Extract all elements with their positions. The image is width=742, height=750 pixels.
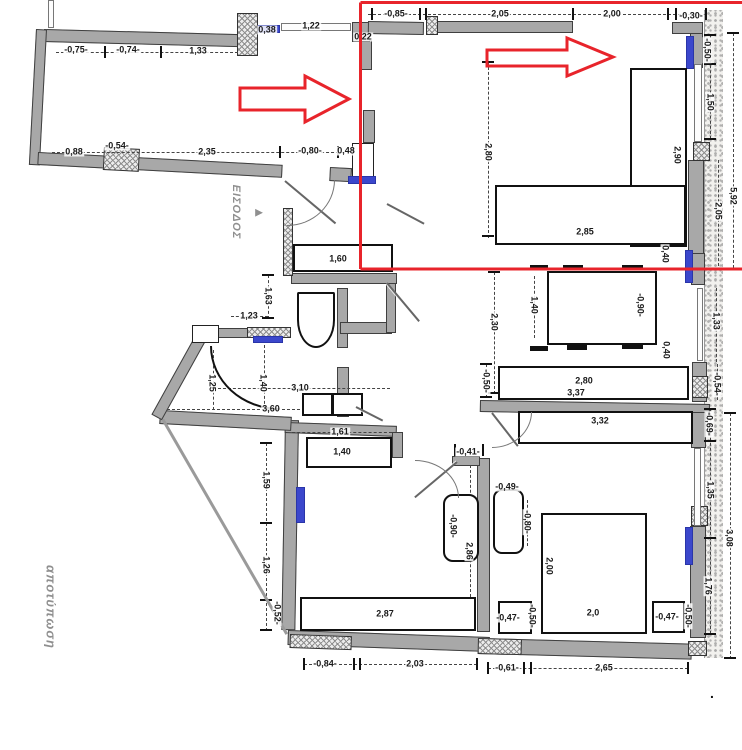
wall-segment — [340, 322, 392, 334]
door-swing-arc — [210, 346, 280, 410]
dimension-label: -0,49- — [494, 483, 520, 492]
chair-mark — [530, 265, 548, 270]
dimension-tick — [419, 8, 421, 20]
chair-mark — [622, 344, 643, 349]
dimension-tick — [727, 32, 739, 34]
dimension-label: 1,61 — [330, 428, 350, 437]
wall-segment — [281, 420, 299, 630]
hatched-pier — [688, 641, 707, 656]
chair-mark — [567, 345, 587, 350]
door-swing-arc — [287, 180, 335, 226]
corner-dot: . — [710, 685, 714, 701]
furniture-outline — [302, 393, 333, 416]
wall-segment — [29, 29, 47, 165]
wall-segment — [368, 21, 424, 35]
dimension-label: 3,10 — [290, 384, 310, 393]
entrance-label: ΕΙΣΟΔΟΣ — [230, 185, 242, 240]
toilet-fixture — [297, 292, 335, 348]
dimension-label: 3,37 — [566, 389, 586, 398]
dimension-label: 1,60 — [328, 255, 348, 264]
hatched-pier — [290, 634, 352, 650]
dimension-label: -0,50- — [684, 603, 693, 629]
dimension-label: 1,26 — [262, 555, 271, 575]
furniture-rounded — [493, 489, 524, 554]
dimension-label: 2,90 — [673, 145, 682, 165]
dimension-tick — [425, 8, 427, 20]
window-marker — [348, 176, 376, 184]
dimension-label: -0,80- — [523, 509, 532, 535]
hatched-pier — [426, 16, 438, 35]
dimension-label: 2,86 — [465, 541, 474, 561]
window-marker — [685, 250, 693, 283]
red-arrow-left-icon — [240, 76, 349, 122]
floor-plan-canvas: -0,75--0,74-1,330,381,220,22-0,85-2,052,… — [0, 0, 742, 750]
exterior-slant-line — [162, 419, 288, 635]
dimension-label: 1,40 — [259, 373, 268, 393]
dimension-label: -0,50- — [528, 603, 537, 629]
dimension-label: -0,52- — [273, 600, 282, 626]
dimension-label: 1,59 — [262, 470, 271, 490]
dimension-label: 2,05 — [714, 201, 723, 221]
dimension-tick — [523, 662, 525, 674]
dimension-tick — [371, 8, 373, 20]
window-marker — [253, 336, 283, 343]
dimension-label: 2,35 — [197, 148, 217, 157]
dimension-tick — [260, 629, 272, 631]
dimension-tick — [724, 412, 736, 414]
dimension-tick — [487, 662, 489, 674]
dimension-label: 1,33 — [188, 47, 208, 56]
dimension-label: 1,63 — [264, 286, 273, 306]
dimension-tick — [160, 46, 162, 58]
dimension-label: 0,38 — [257, 26, 277, 35]
chair-mark — [530, 346, 548, 351]
dimension-label: -0,90- — [449, 513, 458, 539]
dimension-line — [494, 272, 495, 394]
chair-mark — [563, 265, 583, 270]
dimension-label: 0,88 — [64, 148, 84, 157]
dimension-tick — [480, 363, 492, 365]
dimension-tick — [303, 658, 305, 670]
hatched-pier — [693, 142, 710, 161]
dimension-tick — [476, 658, 478, 670]
dimension-label: 2,85 — [575, 228, 595, 237]
dimension-tick — [359, 658, 361, 670]
window-marker — [296, 487, 305, 523]
furniture-outline — [332, 393, 363, 416]
window-opening — [48, 0, 54, 28]
dimension-tick — [482, 444, 484, 456]
dimension-label: -0,41- — [455, 448, 481, 457]
dimension-tick — [260, 442, 272, 444]
dimension-label: 1,40 — [530, 295, 539, 315]
wall-segment — [437, 21, 573, 33]
dimension-tick — [667, 8, 669, 20]
dimension-label: 0,40 — [661, 244, 670, 264]
dimension-tick — [279, 146, 281, 158]
window-opening — [697, 288, 703, 361]
dimension-tick — [704, 537, 716, 539]
dimension-label: 0,48 — [336, 147, 356, 156]
hatched-pier — [237, 13, 258, 56]
dimension-label: 2,00 — [545, 556, 554, 576]
dimension-label: 2,0 — [586, 609, 601, 618]
dimension-tick — [724, 657, 736, 659]
dimension-label: 3,60 — [261, 405, 281, 414]
dimension-label: 3,32 — [590, 417, 610, 426]
dimension-label: -0,90- — [636, 292, 645, 318]
dimension-tick — [704, 440, 716, 442]
dimension-label: -0,84- — [312, 660, 338, 669]
wall-segment — [291, 273, 397, 284]
wall-segment — [360, 40, 372, 70]
dimension-label: 1,35 — [706, 480, 715, 500]
dimension-tick — [704, 408, 716, 410]
dimension-label: -0,47- — [654, 613, 680, 622]
dimension-tick — [482, 235, 494, 237]
dimension-tick — [675, 8, 677, 20]
dimension-label: -0,61- — [494, 664, 520, 673]
wall-segment — [691, 253, 705, 285]
dimension-label: -0,50- — [703, 37, 712, 63]
dimension-label: -0,75- — [63, 46, 89, 55]
dimension-tick — [488, 271, 500, 273]
dimension-label: 2,00 — [602, 10, 622, 19]
dimension-label: 1,25 — [208, 373, 217, 393]
dimension-label: -0,47- — [495, 614, 521, 623]
dimension-label: 1,40 — [332, 448, 352, 457]
dimension-label: 2,05 — [490, 10, 510, 19]
dimension-label: 2,87 — [375, 610, 395, 619]
dimension-label: 0,40 — [662, 340, 671, 360]
window-opening — [694, 448, 701, 526]
dimension-tick — [704, 34, 716, 36]
dimension-tick — [353, 658, 355, 670]
dimension-tick — [705, 8, 707, 20]
wall-segment — [392, 432, 403, 458]
dimension-label: -0,85- — [383, 10, 409, 19]
dimension-tick — [704, 138, 716, 140]
dimension-label: -0,80- — [297, 147, 323, 156]
window-marker — [686, 36, 694, 69]
chair-mark — [622, 265, 643, 270]
dimension-tick — [530, 662, 532, 674]
dimension-label: 1,23 — [239, 312, 259, 321]
dimension-label: 2,80 — [484, 142, 493, 162]
hatched-pier — [478, 638, 522, 655]
dimension-label: 1,22 — [301, 22, 321, 31]
dimension-label: 0,22 — [353, 33, 373, 42]
door-leaf — [387, 203, 425, 224]
dimension-tick — [480, 396, 492, 398]
dimension-tick — [572, 8, 574, 20]
wall-segment — [337, 288, 348, 348]
dimension-tick — [260, 522, 272, 524]
dimension-label: 2,30 — [490, 312, 499, 332]
dimension-label: -0,69- — [705, 411, 714, 437]
window-marker — [685, 527, 693, 565]
dimension-tick — [262, 274, 274, 276]
dimension-label: 2,03 — [405, 660, 425, 669]
hatched-pier — [692, 376, 708, 398]
dimension-tick — [687, 662, 689, 674]
dimension-label: 1,33 — [712, 311, 721, 331]
dimension-label: -0,30- — [678, 12, 704, 21]
dimension-label: -0,54- — [713, 371, 722, 397]
dimension-label: 5,92 — [729, 186, 738, 206]
door-jamb-pier — [192, 325, 219, 343]
dimension-label: 3,08 — [725, 528, 734, 548]
dimension-label: 1,76 — [704, 576, 713, 596]
dimension-label: -0,54- — [104, 142, 130, 151]
hatched-pier — [103, 147, 140, 172]
red-arrow-right-icon — [487, 38, 613, 76]
dimension-label: 2,80 — [574, 377, 594, 386]
dimension-label: -0,74- — [115, 46, 141, 55]
dimension-tick — [704, 633, 716, 635]
entrance-direction-arrow-icon: ► — [253, 205, 266, 220]
window-opening — [694, 64, 702, 142]
wall-segment — [363, 110, 375, 143]
dimension-tick — [104, 46, 106, 58]
dimension-tick — [262, 317, 274, 319]
dimension-label: -0,50- — [482, 368, 491, 394]
dimension-tick — [482, 61, 494, 63]
wall-segment — [151, 334, 206, 420]
dimension-label: 2,65 — [594, 664, 614, 673]
survey-label: αποτύπωση — [44, 565, 59, 649]
dimension-line — [733, 33, 734, 268]
dimension-tick — [704, 63, 716, 65]
dimension-label: 1,50 — [706, 92, 715, 112]
